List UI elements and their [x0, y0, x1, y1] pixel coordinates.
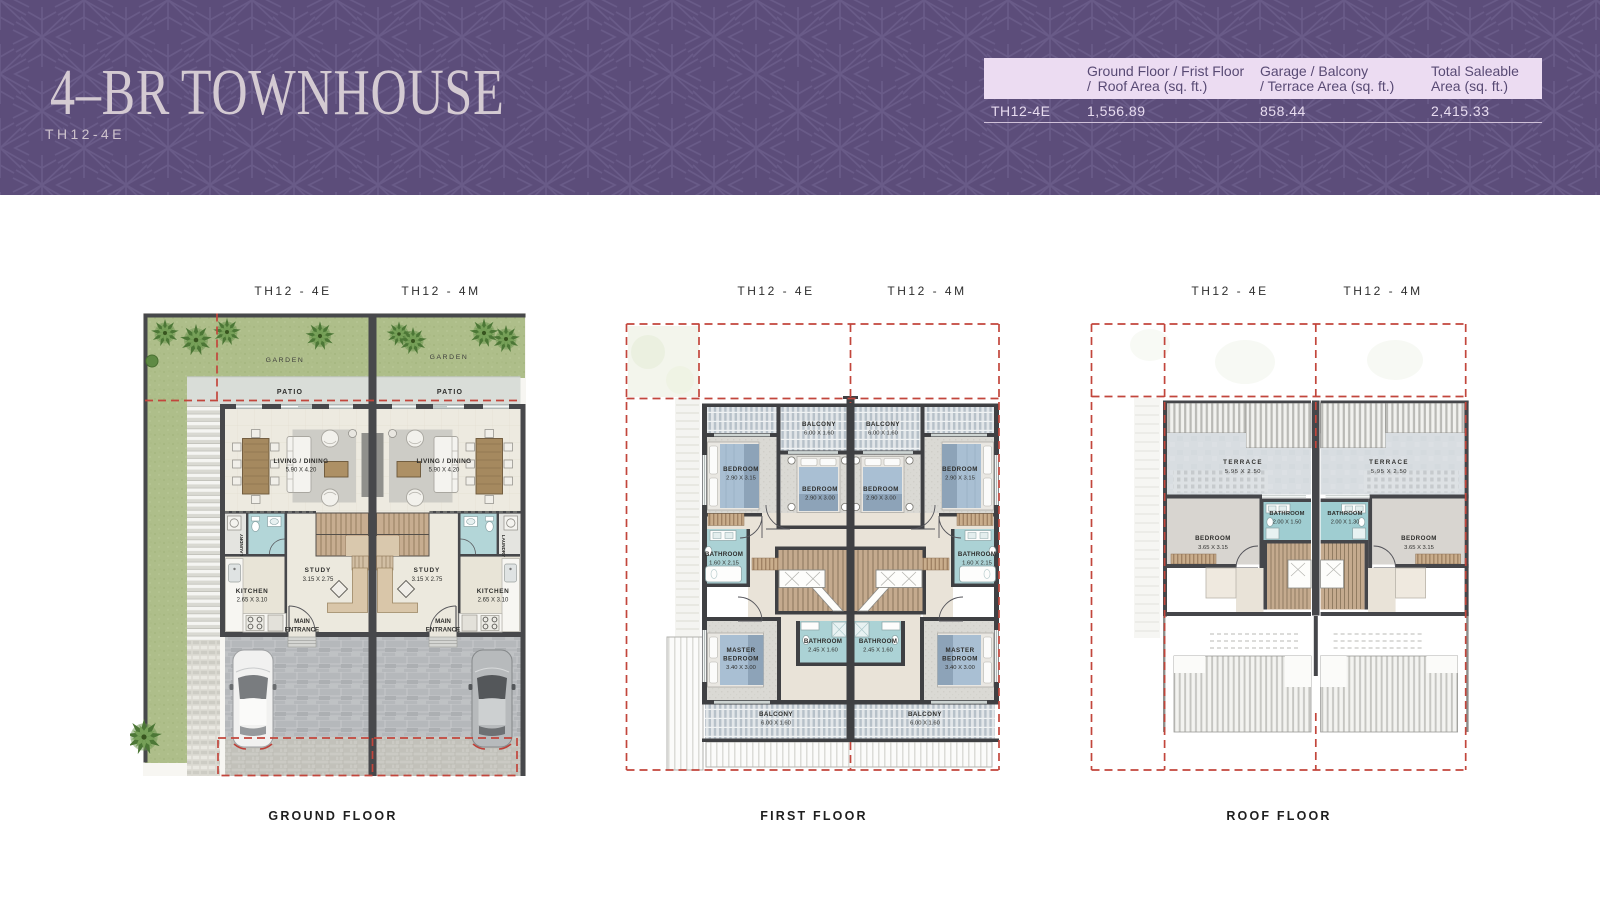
svg-text:MASTER: MASTER	[726, 647, 755, 654]
svg-text:BEDROOM: BEDROOM	[863, 486, 899, 493]
svg-text:LAUNDRY: LAUNDRY	[501, 535, 506, 557]
svg-text:5.95 X 2.50: 5.95 X 2.50	[1371, 469, 1407, 475]
svg-text:BEDROOM: BEDROOM	[942, 656, 978, 663]
svg-text:2.00 X 1.50: 2.00 X 1.50	[1273, 520, 1302, 526]
svg-text:MAIN: MAIN	[294, 618, 310, 625]
svg-text:3.40 X 3.00: 3.40 X 3.00	[726, 665, 756, 671]
svg-text:2.65 X 3.10: 2.65 X 3.10	[478, 598, 509, 604]
svg-text:BALCONY: BALCONY	[802, 421, 836, 428]
svg-text:BALCONY: BALCONY	[759, 711, 793, 718]
svg-text:6.00 X 1.60: 6.00 X 1.60	[868, 431, 898, 437]
svg-text:5.90 X 4.20: 5.90 X 4.20	[286, 468, 317, 474]
svg-text:3.15 X 2.75: 3.15 X 2.75	[412, 577, 443, 583]
svg-text:PATIO: PATIO	[277, 389, 303, 396]
svg-text:TERRACE: TERRACE	[1223, 459, 1263, 466]
svg-text:2.90 X 3.15: 2.90 X 3.15	[945, 476, 975, 482]
svg-text:PATIO: PATIO	[437, 389, 463, 396]
svg-text:2.00 X 1.30: 2.00 X 1.30	[1331, 520, 1360, 526]
svg-text:BALCONY: BALCONY	[866, 421, 900, 428]
svg-text:2.90 X 3.15: 2.90 X 3.15	[726, 476, 756, 482]
svg-text:GARDEN: GARDEN	[430, 354, 469, 361]
svg-text:BATHROOM: BATHROOM	[859, 638, 897, 645]
svg-text:3.65 X 3.15: 3.65 X 3.15	[1404, 545, 1434, 551]
svg-text:2.90 X 3.00: 2.90 X 3.00	[866, 496, 896, 502]
svg-text:LAUNDRY: LAUNDRY	[239, 534, 244, 556]
svg-text:6.00 X 1.60: 6.00 X 1.60	[761, 721, 791, 727]
svg-text:LIVING / DINING: LIVING / DINING	[417, 458, 472, 465]
svg-text:1.60 X 2.15: 1.60 X 2.15	[962, 561, 992, 567]
svg-text:3.15 X 2.75: 3.15 X 2.75	[303, 577, 334, 583]
svg-text:6.00 X 1.60: 6.00 X 1.60	[804, 431, 834, 437]
svg-text:BEDROOM: BEDROOM	[802, 486, 838, 493]
svg-text:KITCHEN: KITCHEN	[477, 588, 510, 595]
svg-text:BEDROOM: BEDROOM	[723, 466, 759, 473]
svg-text:2.45 X 1.60: 2.45 X 1.60	[863, 648, 893, 654]
svg-text:KITCHEN: KITCHEN	[236, 588, 269, 595]
svg-text:ENTRANCE: ENTRANCE	[285, 627, 319, 634]
svg-text:BEDROOM: BEDROOM	[1401, 535, 1437, 542]
svg-text:STUDY: STUDY	[305, 567, 332, 574]
svg-text:5.90 X 4.20: 5.90 X 4.20	[429, 468, 460, 474]
svg-text:MASTER: MASTER	[945, 647, 974, 654]
svg-text:2.90 X 3.00: 2.90 X 3.00	[805, 496, 835, 502]
svg-text:BALCONY: BALCONY	[908, 711, 942, 718]
svg-text:STUDY: STUDY	[414, 567, 441, 574]
svg-text:BATHROOM: BATHROOM	[1327, 511, 1362, 517]
svg-text:1.60 X 2.15: 1.60 X 2.15	[709, 561, 739, 567]
svg-text:BEDROOM: BEDROOM	[723, 656, 759, 663]
svg-text:LIVING / DINING: LIVING / DINING	[274, 458, 329, 465]
svg-text:ENTRANCE: ENTRANCE	[426, 627, 460, 634]
svg-text:GARDEN: GARDEN	[266, 357, 305, 364]
svg-text:3.40 X 3.00: 3.40 X 3.00	[945, 665, 975, 671]
svg-text:2.45 X 1.60: 2.45 X 1.60	[808, 648, 838, 654]
svg-text:BEDROOM: BEDROOM	[1195, 535, 1231, 542]
svg-text:BATHROOM: BATHROOM	[705, 551, 743, 558]
svg-text:BEDROOM: BEDROOM	[942, 466, 978, 473]
svg-text:5.95 X 2.50: 5.95 X 2.50	[1225, 469, 1261, 475]
svg-text:BATHROOM: BATHROOM	[1269, 511, 1304, 517]
svg-text:MAIN: MAIN	[435, 618, 451, 625]
svg-text:TERRACE: TERRACE	[1369, 459, 1409, 466]
svg-text:BATHROOM: BATHROOM	[958, 551, 996, 558]
svg-text:2.65 X 3.10: 2.65 X 3.10	[237, 598, 268, 604]
svg-text:3.65 X 3.15: 3.65 X 3.15	[1198, 545, 1228, 551]
svg-text:BATHROOM: BATHROOM	[804, 638, 842, 645]
svg-text:6.00 X 1.60: 6.00 X 1.60	[910, 721, 940, 727]
